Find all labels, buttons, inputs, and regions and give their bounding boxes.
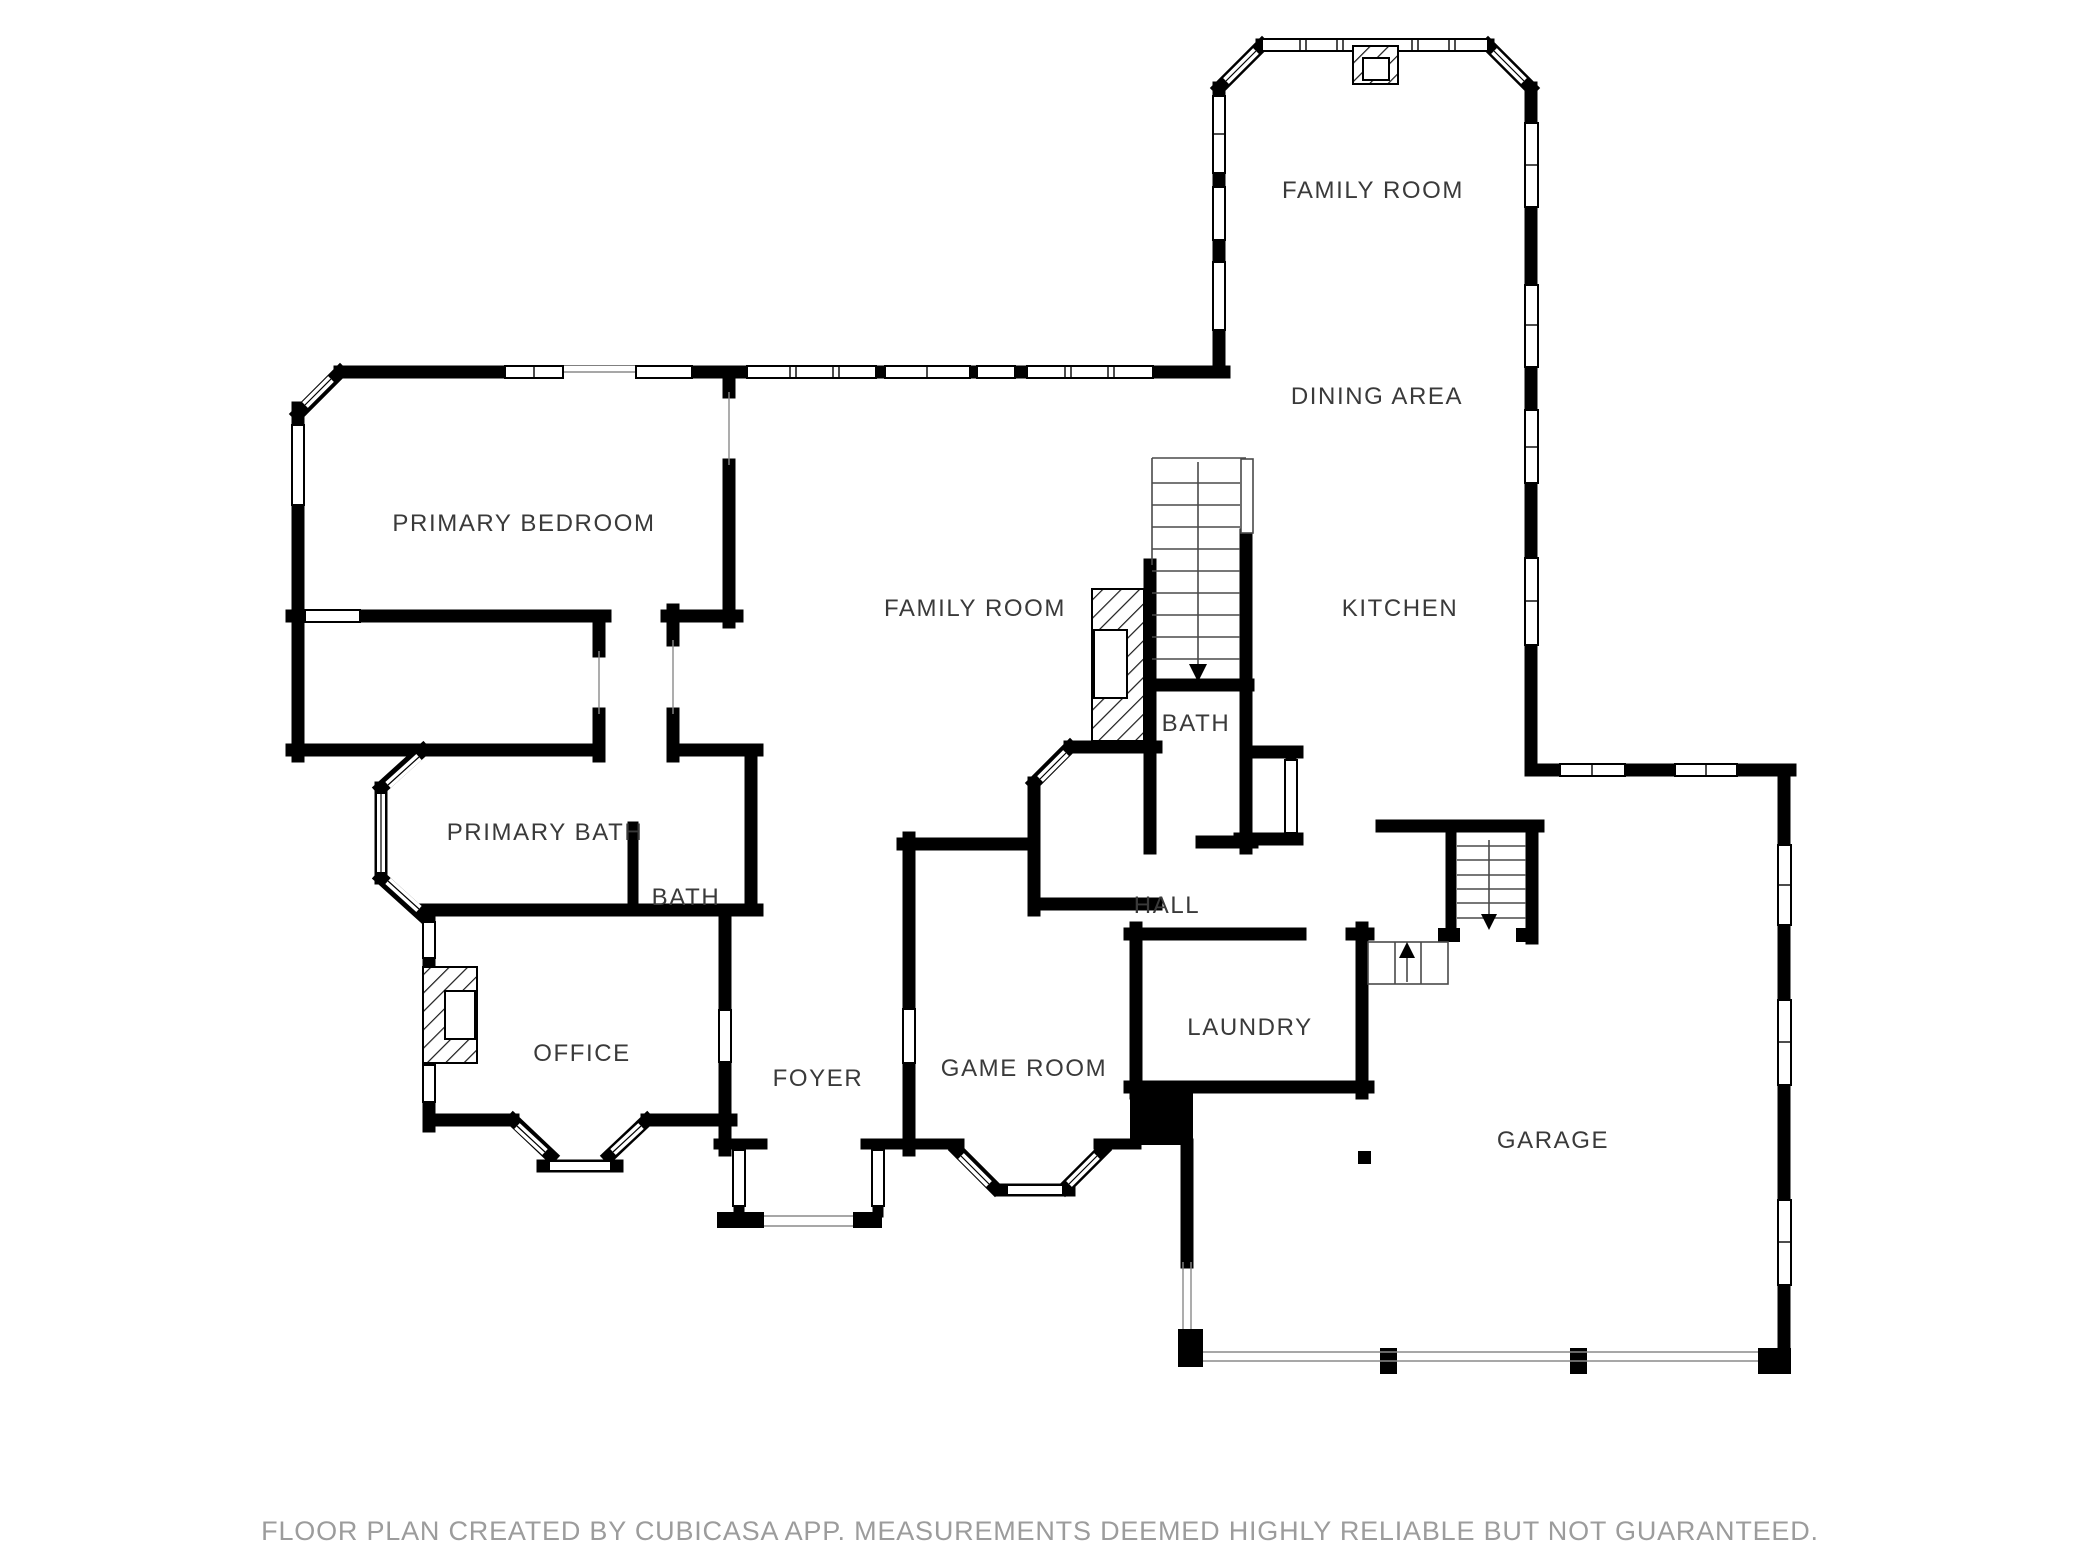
floor-plan-page: FAMILY ROOM DINING AREA PRIMARY BEDROOM …: [0, 0, 2080, 1560]
room-labels: FAMILY ROOM DINING AREA PRIMARY BEDROOM …: [392, 177, 1609, 1154]
fireplace-icon: [1353, 46, 1398, 84]
staircase-main: [1152, 458, 1253, 682]
room-label-family-room-upper: FAMILY ROOM: [1282, 177, 1464, 204]
walls: [292, 45, 1791, 1374]
room-label-hall: HALL: [1134, 892, 1200, 919]
room-label-kitchen: KITCHEN: [1342, 595, 1459, 622]
fireplace-icon: [423, 967, 477, 1063]
room-label-bath-center: BATH: [1162, 710, 1231, 737]
windows: [292, 39, 1791, 1285]
room-label-laundry: LAUNDRY: [1187, 1014, 1312, 1041]
staircase-basement: [1457, 840, 1526, 930]
fireplace-icon: [1092, 589, 1144, 741]
room-label-garage: GARAGE: [1497, 1127, 1609, 1154]
staircase-garage-entry: [1368, 942, 1448, 984]
room-label-primary-bath: PRIMARY BATH: [447, 819, 644, 846]
room-label-foyer: FOYER: [773, 1065, 864, 1092]
room-label-game-room: GAME ROOM: [941, 1055, 1107, 1082]
floor-plan-canvas: FAMILY ROOM DINING AREA PRIMARY BEDROOM …: [0, 0, 2080, 1560]
room-label-bath-left: BATH: [652, 884, 721, 911]
room-label-dining-area: DINING AREA: [1291, 383, 1463, 410]
footer-attribution-text: FLOOR PLAN CREATED BY CUBICASA APP. MEAS…: [261, 1516, 1819, 1546]
stairs-down-arrow-icon: [1481, 840, 1497, 930]
room-label-family-room-main: FAMILY ROOM: [884, 595, 1066, 622]
room-label-primary-bedroom: PRIMARY BEDROOM: [392, 510, 655, 537]
room-label-office: OFFICE: [533, 1040, 631, 1067]
stairs-down-arrow-icon: [1189, 462, 1207, 682]
stairs-up-arrow-icon: [1399, 942, 1415, 982]
